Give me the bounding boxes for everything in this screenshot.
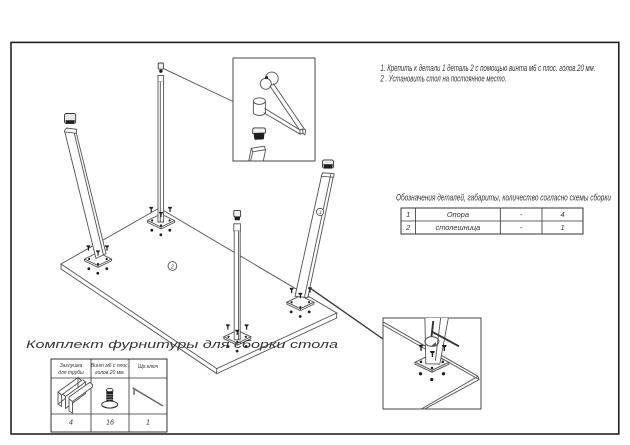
svg-text:Опора: Опора [447,210,469,219]
svg-text:1: 1 [406,210,410,219]
svg-text:голов.20 мм.: голов.20 мм. [95,370,125,376]
svg-text:4: 4 [69,420,73,427]
svg-text:-: - [520,223,523,232]
svg-text:Заглушка: Заглушка [60,363,83,369]
svg-text:Обозначения деталей, габариты,: Обозначения деталей, габариты, количеств… [396,193,611,203]
svg-text:-: - [520,210,523,219]
svg-text:2: 2 [170,264,174,270]
svg-text:1: 1 [146,420,150,427]
svg-text:для трубы: для трубы [58,370,84,376]
svg-text:4: 4 [561,210,565,219]
svg-text:16: 16 [106,420,114,427]
svg-text:Шр.ключ: Шр.ключ [138,364,158,370]
svg-text:2 . Установить стол на постоян: 2 . Установить стол на постоянное место. [380,73,507,83]
svg-text:1: 1 [319,210,322,215]
svg-text:Винт м6 с плос.: Винт м6 с плос. [91,363,129,369]
svg-text:1. Крепить к детали 1 деталь 2: 1. Крепить к детали 1 деталь 2 с помощью… [381,63,596,73]
svg-text:1: 1 [561,223,565,232]
svg-text:Комплект фурнитуры для сборки: Комплект фурнитуры для сборки стола [26,339,338,351]
svg-text:2: 2 [405,223,410,232]
svg-text:столешница: столешница [436,223,481,232]
